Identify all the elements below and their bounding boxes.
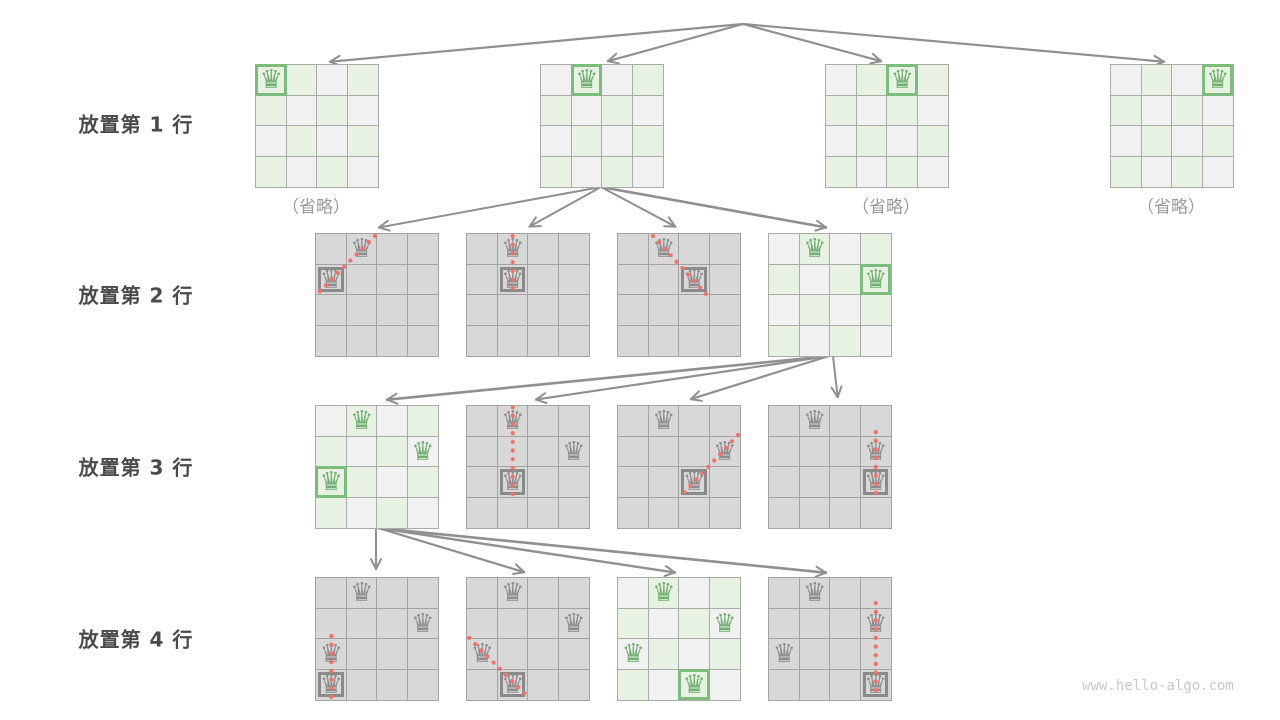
board-cell bbox=[1111, 65, 1142, 96]
board-cell bbox=[887, 96, 918, 127]
board-cell bbox=[498, 295, 529, 326]
board-cell bbox=[528, 295, 559, 326]
board-cell bbox=[679, 670, 710, 701]
board-cell bbox=[541, 157, 572, 188]
board-cell bbox=[316, 609, 347, 640]
board-cell bbox=[467, 609, 498, 640]
board-cell bbox=[679, 578, 710, 609]
board-cell bbox=[317, 157, 348, 188]
board-cell bbox=[918, 126, 949, 157]
board-cell bbox=[633, 157, 664, 188]
board-cell bbox=[498, 234, 529, 265]
row-label: 放置第 2 行 bbox=[79, 280, 194, 309]
board-cell bbox=[618, 670, 649, 701]
board-cell bbox=[618, 406, 649, 437]
board-cell bbox=[317, 96, 348, 127]
board-cell bbox=[348, 96, 379, 127]
board-cell bbox=[618, 639, 649, 670]
board-cell bbox=[287, 65, 318, 96]
board-cell bbox=[679, 295, 710, 326]
board-cell bbox=[769, 326, 800, 357]
board-cell bbox=[528, 406, 559, 437]
board-cell bbox=[830, 326, 861, 357]
board-cell bbox=[769, 265, 800, 296]
board-cell bbox=[377, 437, 408, 468]
board-cell bbox=[861, 437, 892, 468]
board-cell bbox=[830, 498, 861, 529]
board-cell bbox=[830, 639, 861, 670]
board-cell bbox=[377, 265, 408, 296]
board-cell bbox=[572, 96, 603, 127]
board-cell bbox=[408, 326, 439, 357]
board-cell bbox=[541, 126, 572, 157]
board-cell bbox=[528, 467, 559, 498]
board-cell bbox=[1172, 65, 1203, 96]
board-cell bbox=[830, 234, 861, 265]
board-cell bbox=[649, 639, 680, 670]
board-cell bbox=[347, 670, 378, 701]
board-cell bbox=[602, 126, 633, 157]
board-cell bbox=[830, 406, 861, 437]
board-cell bbox=[679, 234, 710, 265]
board-cell bbox=[408, 670, 439, 701]
board-cell bbox=[467, 326, 498, 357]
board-cell bbox=[347, 326, 378, 357]
board-cell bbox=[498, 670, 529, 701]
board-cell bbox=[618, 295, 649, 326]
board-cell bbox=[377, 295, 408, 326]
board-cell bbox=[710, 295, 741, 326]
board-cell bbox=[649, 326, 680, 357]
board-cell bbox=[347, 578, 378, 609]
board-cell bbox=[679, 639, 710, 670]
board-cell bbox=[800, 639, 831, 670]
board-cell bbox=[649, 437, 680, 468]
board-cell bbox=[377, 406, 408, 437]
board-cell bbox=[316, 467, 347, 498]
board-cell bbox=[769, 467, 800, 498]
board-cell bbox=[830, 437, 861, 468]
board-cell bbox=[618, 326, 649, 357]
board-cell bbox=[408, 498, 439, 529]
board-cell bbox=[528, 670, 559, 701]
tree-arrow bbox=[529, 187, 601, 227]
board-cell bbox=[347, 639, 378, 670]
board-cell bbox=[861, 670, 892, 701]
board-cell bbox=[498, 578, 529, 609]
board-cell bbox=[826, 157, 857, 188]
board-cell bbox=[1172, 126, 1203, 157]
board-cell bbox=[1142, 157, 1173, 188]
board-cell bbox=[377, 467, 408, 498]
board-cell bbox=[1203, 126, 1234, 157]
board-cell bbox=[602, 157, 633, 188]
board-cell bbox=[498, 265, 529, 296]
board-cell bbox=[830, 578, 861, 609]
tree-arrow bbox=[833, 356, 838, 398]
board-cell bbox=[710, 498, 741, 529]
board-cell bbox=[347, 467, 378, 498]
board-cell bbox=[800, 406, 831, 437]
board-cell bbox=[559, 609, 590, 640]
board-row1-col2: ♛ bbox=[825, 64, 949, 188]
board-cell bbox=[408, 467, 439, 498]
board-cell bbox=[347, 498, 378, 529]
board-row4-col3-conflict: ♛♛♛♛ bbox=[768, 577, 892, 701]
board-cell bbox=[800, 467, 831, 498]
board-cell bbox=[887, 157, 918, 188]
board-cell bbox=[316, 578, 347, 609]
board-cell bbox=[316, 326, 347, 357]
board-cell bbox=[408, 265, 439, 296]
board-row3-col1-conflict: ♛♛♛ bbox=[466, 405, 590, 529]
tree-arrow bbox=[378, 187, 601, 228]
board-cell bbox=[287, 126, 318, 157]
board-cell bbox=[498, 467, 529, 498]
board-cell bbox=[830, 467, 861, 498]
board-cell bbox=[528, 639, 559, 670]
tree-arrow bbox=[386, 356, 829, 400]
board-row2-col2-conflict: ♛♛ bbox=[617, 233, 741, 357]
board-cell bbox=[1142, 96, 1173, 127]
board-cell bbox=[710, 467, 741, 498]
board-cell bbox=[618, 609, 649, 640]
board-cell bbox=[649, 498, 680, 529]
board-cell bbox=[826, 65, 857, 96]
board-cell bbox=[710, 578, 741, 609]
board-cell bbox=[649, 609, 680, 640]
board-cell bbox=[572, 126, 603, 157]
board-cell bbox=[649, 265, 680, 296]
board-cell bbox=[1142, 65, 1173, 96]
board-cell bbox=[498, 639, 529, 670]
board-cell bbox=[861, 609, 892, 640]
board-cell bbox=[408, 437, 439, 468]
board-cell bbox=[559, 437, 590, 468]
board-cell bbox=[316, 265, 347, 296]
board-cell bbox=[800, 498, 831, 529]
board-cell bbox=[679, 265, 710, 296]
board-cell bbox=[347, 406, 378, 437]
board-cell bbox=[528, 265, 559, 296]
board-cell bbox=[256, 157, 287, 188]
board-cell bbox=[861, 406, 892, 437]
board-cell bbox=[377, 578, 408, 609]
board-cell bbox=[498, 437, 529, 468]
board-cell bbox=[559, 326, 590, 357]
board-cell bbox=[377, 498, 408, 529]
board-cell bbox=[800, 670, 831, 701]
board-cell bbox=[287, 157, 318, 188]
board-cell bbox=[857, 65, 888, 96]
board-cell bbox=[769, 234, 800, 265]
board-cell bbox=[559, 234, 590, 265]
board-cell bbox=[572, 65, 603, 96]
board-cell bbox=[316, 498, 347, 529]
board-cell bbox=[377, 639, 408, 670]
board-cell bbox=[1111, 126, 1142, 157]
board-cell bbox=[769, 670, 800, 701]
board-cell bbox=[800, 609, 831, 640]
board-cell bbox=[467, 406, 498, 437]
board-cell bbox=[559, 406, 590, 437]
board-cell bbox=[1203, 65, 1234, 96]
board-cell bbox=[649, 234, 680, 265]
board-cell bbox=[861, 498, 892, 529]
board-cell bbox=[408, 609, 439, 640]
board-cell bbox=[861, 578, 892, 609]
board-cell bbox=[710, 609, 741, 640]
board-cell bbox=[256, 96, 287, 127]
board-row2-col3-valid: ♛♛ bbox=[768, 233, 892, 357]
board-cell bbox=[887, 126, 918, 157]
board-cell bbox=[1172, 96, 1203, 127]
board-cell bbox=[618, 578, 649, 609]
board-cell bbox=[347, 437, 378, 468]
board-cell bbox=[861, 467, 892, 498]
board-cell bbox=[467, 670, 498, 701]
board-cell bbox=[769, 578, 800, 609]
board-cell bbox=[317, 65, 348, 96]
board-cell bbox=[679, 498, 710, 529]
board-cell bbox=[710, 639, 741, 670]
tree-arrow bbox=[743, 24, 1165, 62]
board-cell bbox=[861, 295, 892, 326]
board-cell bbox=[769, 437, 800, 468]
tree-arrow bbox=[378, 528, 525, 572]
board-cell bbox=[559, 467, 590, 498]
board-cell bbox=[528, 437, 559, 468]
board-cell bbox=[633, 126, 664, 157]
board-row1-col1: ♛ bbox=[540, 64, 664, 188]
board-cell bbox=[467, 437, 498, 468]
board-row4-col2-solution: ♛♛♛♛ bbox=[617, 577, 741, 701]
tree-arrow bbox=[378, 528, 676, 573]
tree-arrow bbox=[329, 24, 743, 62]
tree-arrow bbox=[607, 24, 743, 61]
board-cell bbox=[800, 295, 831, 326]
board-row3-col0-valid: ♛♛♛ bbox=[315, 405, 439, 529]
board-cell bbox=[498, 609, 529, 640]
board-cell bbox=[347, 234, 378, 265]
board-cell bbox=[559, 295, 590, 326]
board-cell bbox=[918, 65, 949, 96]
board-cell bbox=[602, 65, 633, 96]
board-cell bbox=[377, 670, 408, 701]
board-cell bbox=[800, 437, 831, 468]
board-cell bbox=[861, 326, 892, 357]
board-cell bbox=[559, 578, 590, 609]
board-cell bbox=[317, 126, 348, 157]
board-cell bbox=[887, 65, 918, 96]
board-cell bbox=[467, 498, 498, 529]
board-cell bbox=[769, 406, 800, 437]
board-cell bbox=[602, 96, 633, 127]
tree-arrow bbox=[601, 187, 827, 228]
board-cell bbox=[710, 265, 741, 296]
board-row2-col1-conflict: ♛♛ bbox=[466, 233, 590, 357]
board-cell bbox=[467, 265, 498, 296]
board-cell bbox=[861, 234, 892, 265]
board-cell bbox=[830, 265, 861, 296]
board-cell bbox=[498, 326, 529, 357]
board-cell bbox=[559, 498, 590, 529]
tree-arrow bbox=[535, 356, 829, 400]
row-label: 放置第 1 行 bbox=[79, 109, 194, 138]
board-row4-col0-conflict: ♛♛♛♛ bbox=[315, 577, 439, 701]
row-label: 放置第 4 行 bbox=[79, 624, 194, 653]
board-cell bbox=[830, 295, 861, 326]
tree-arrow bbox=[378, 528, 827, 573]
omitted-label: （省略） bbox=[1137, 193, 1205, 218]
board-cell bbox=[559, 670, 590, 701]
board-cell bbox=[348, 126, 379, 157]
board-row1-col0: ♛ bbox=[255, 64, 379, 188]
board-cell bbox=[316, 295, 347, 326]
board-cell bbox=[861, 265, 892, 296]
board-cell bbox=[633, 65, 664, 96]
board-cell bbox=[857, 126, 888, 157]
board-cell bbox=[408, 295, 439, 326]
board-cell bbox=[377, 234, 408, 265]
board-cell bbox=[710, 326, 741, 357]
board-cell bbox=[800, 234, 831, 265]
board-row3-col2-conflict: ♛♛♛ bbox=[617, 405, 741, 529]
board-cell bbox=[559, 265, 590, 296]
board-cell bbox=[857, 157, 888, 188]
board-cell bbox=[256, 65, 287, 96]
board-cell bbox=[826, 96, 857, 127]
board-cell bbox=[541, 96, 572, 127]
nqueens-backtracking-diagram: 放置第 1 行放置第 2 行放置第 3 行放置第 4 行 （省略）（省略）（省略… bbox=[0, 0, 1280, 720]
row-label: 放置第 3 行 bbox=[79, 452, 194, 481]
board-cell bbox=[528, 609, 559, 640]
board-cell bbox=[541, 65, 572, 96]
board-cell bbox=[316, 670, 347, 701]
omitted-label: （省略） bbox=[282, 193, 350, 218]
board-cell bbox=[467, 578, 498, 609]
board-cell bbox=[1142, 126, 1173, 157]
board-row1-col3: ♛ bbox=[1110, 64, 1234, 188]
board-cell bbox=[528, 498, 559, 529]
board-cell bbox=[528, 578, 559, 609]
board-row4-col1-conflict: ♛♛♛♛ bbox=[466, 577, 590, 701]
board-cell bbox=[347, 295, 378, 326]
board-cell bbox=[618, 498, 649, 529]
board-cell bbox=[1172, 157, 1203, 188]
board-cell bbox=[618, 437, 649, 468]
board-cell bbox=[467, 467, 498, 498]
board-cell bbox=[800, 578, 831, 609]
board-cell bbox=[649, 467, 680, 498]
tree-arrow bbox=[690, 356, 829, 399]
board-cell bbox=[408, 578, 439, 609]
board-cell bbox=[316, 234, 347, 265]
board-cell bbox=[316, 639, 347, 670]
board-cell bbox=[316, 406, 347, 437]
tree-arrow bbox=[743, 24, 882, 61]
board-cell bbox=[528, 234, 559, 265]
board-cell bbox=[377, 326, 408, 357]
omitted-label: （省略） bbox=[852, 193, 920, 218]
board-cell bbox=[498, 406, 529, 437]
board-cell bbox=[408, 406, 439, 437]
board-cell bbox=[1203, 96, 1234, 127]
watermark: www.hello-algo.com bbox=[1082, 678, 1234, 694]
board-row3-col3-conflict: ♛♛♛ bbox=[768, 405, 892, 529]
board-cell bbox=[769, 498, 800, 529]
board-cell bbox=[1111, 157, 1142, 188]
board-cell bbox=[467, 639, 498, 670]
board-cell bbox=[1111, 96, 1142, 127]
board-cell bbox=[316, 437, 347, 468]
board-cell bbox=[861, 639, 892, 670]
board-cell bbox=[679, 326, 710, 357]
board-cell bbox=[559, 639, 590, 670]
board-cell bbox=[769, 639, 800, 670]
board-cell bbox=[348, 65, 379, 96]
board-cell bbox=[649, 578, 680, 609]
board-cell bbox=[287, 96, 318, 127]
board-cell bbox=[710, 437, 741, 468]
board-cell bbox=[830, 609, 861, 640]
board-cell bbox=[769, 609, 800, 640]
board-cell bbox=[467, 295, 498, 326]
board-cell bbox=[679, 437, 710, 468]
board-cell bbox=[618, 234, 649, 265]
board-cell bbox=[679, 406, 710, 437]
board-cell bbox=[800, 326, 831, 357]
board-cell bbox=[710, 406, 741, 437]
board-cell bbox=[528, 326, 559, 357]
board-cell bbox=[918, 157, 949, 188]
board-cell bbox=[408, 639, 439, 670]
board-cell bbox=[857, 96, 888, 127]
board-cell bbox=[918, 96, 949, 127]
board-cell bbox=[679, 467, 710, 498]
board-cell bbox=[618, 467, 649, 498]
board-cell bbox=[769, 295, 800, 326]
board-cell bbox=[826, 126, 857, 157]
board-cell bbox=[1203, 157, 1234, 188]
board-cell bbox=[649, 670, 680, 701]
board-cell bbox=[498, 498, 529, 529]
board-cell bbox=[408, 234, 439, 265]
board-row2-col0-conflict: ♛♛ bbox=[315, 233, 439, 357]
board-cell bbox=[830, 670, 861, 701]
board-cell bbox=[572, 157, 603, 188]
board-cell bbox=[710, 234, 741, 265]
board-cell bbox=[649, 406, 680, 437]
board-cell bbox=[633, 96, 664, 127]
board-cell bbox=[347, 265, 378, 296]
board-cell bbox=[800, 265, 831, 296]
board-cell bbox=[377, 609, 408, 640]
board-cell bbox=[618, 265, 649, 296]
board-cell bbox=[710, 670, 741, 701]
board-cell bbox=[348, 157, 379, 188]
board-cell bbox=[649, 295, 680, 326]
board-cell bbox=[679, 609, 710, 640]
tree-arrow bbox=[601, 187, 676, 227]
board-cell bbox=[347, 609, 378, 640]
board-cell bbox=[467, 234, 498, 265]
board-cell bbox=[256, 126, 287, 157]
